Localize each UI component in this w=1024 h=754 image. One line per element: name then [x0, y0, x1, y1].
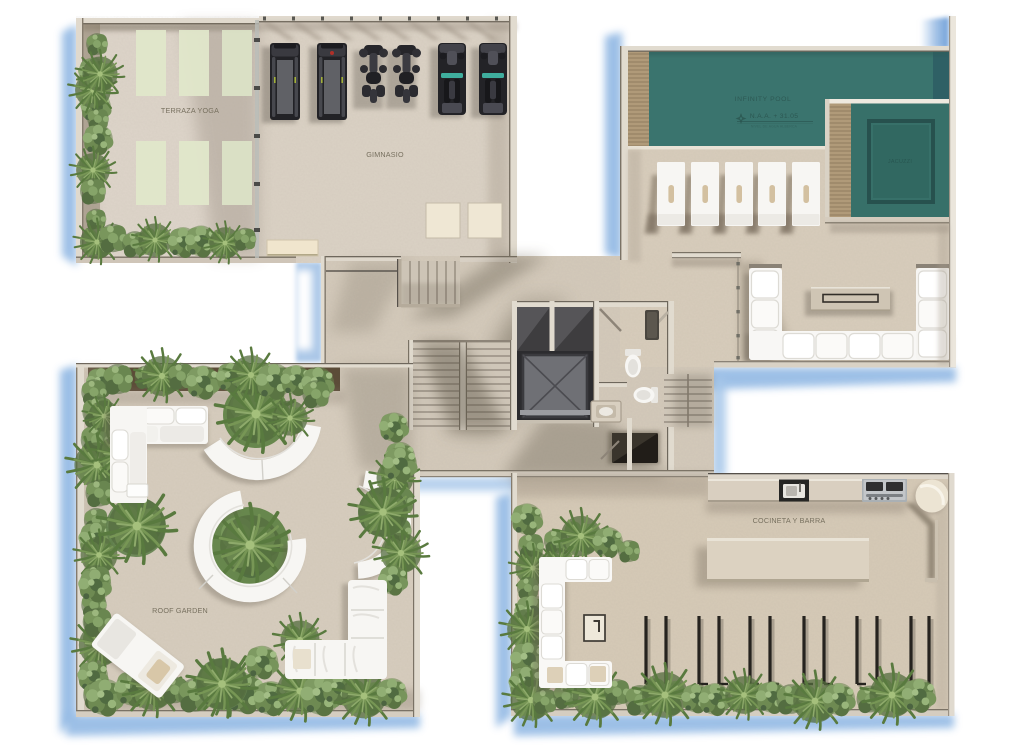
svg-text:ROOF GARDEN: ROOF GARDEN: [152, 606, 208, 615]
svg-text:GIMNASIO: GIMNASIO: [366, 150, 404, 159]
svg-text:JACUZZI: JACUZZI: [888, 159, 912, 165]
svg-text:COCINETA Y BARRA: COCINETA Y BARRA: [753, 516, 826, 525]
svg-text:N.A.A. + 31.05: N.A.A. + 31.05: [750, 113, 799, 120]
svg-text:NIVEL DE AGUA ALBERCA: NIVEL DE AGUA ALBERCA: [751, 125, 798, 129]
svg-text:TERRAZA YOGA: TERRAZA YOGA: [161, 106, 219, 115]
svg-text:INFINITY POOL: INFINITY POOL: [735, 96, 792, 103]
